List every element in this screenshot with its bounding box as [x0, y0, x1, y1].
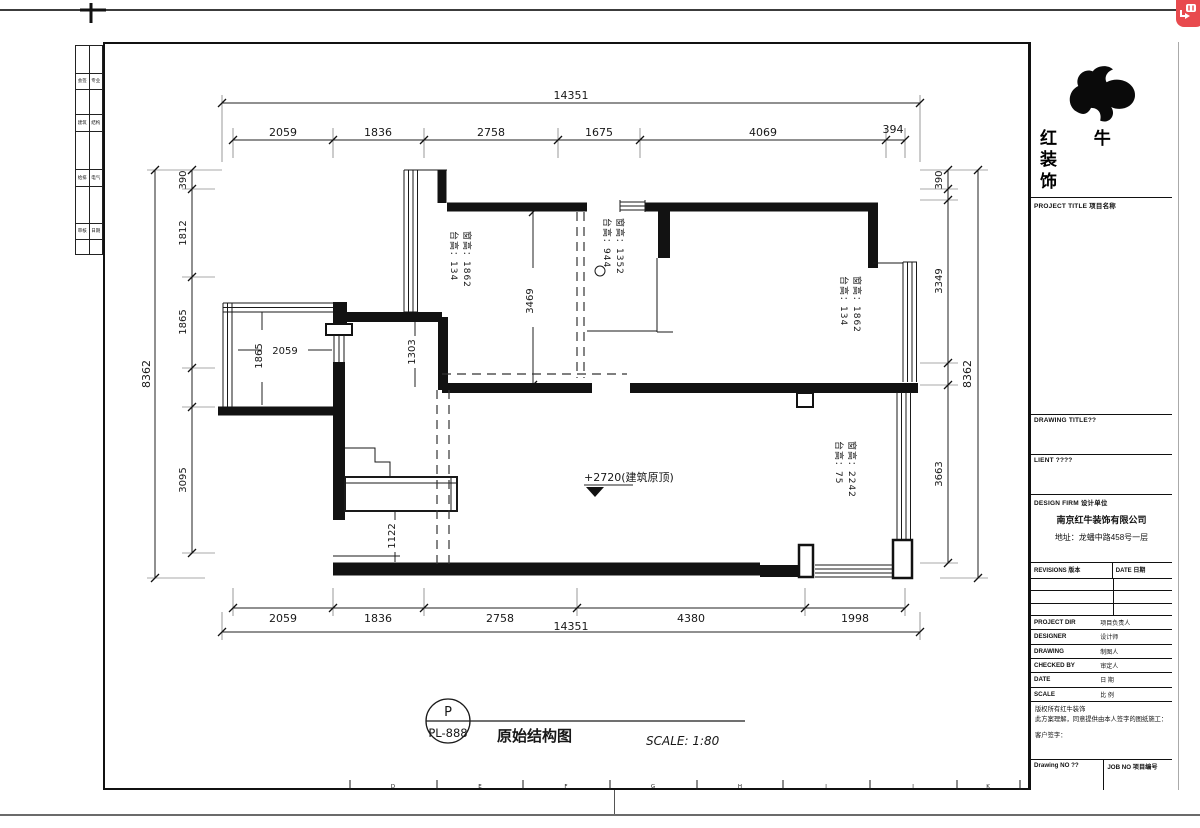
row-label-en: DATE — [1031, 676, 1100, 683]
dim-wall-offset: 1303 — [407, 339, 418, 364]
revisions-date-header: DATE 日期 — [1113, 563, 1149, 578]
drawing-title-bar: P PL-888 原始结构图 SCALE: 1:80 — [426, 699, 745, 748]
dim-bot-1: 2059 — [269, 612, 297, 625]
axis-letter: D — [391, 784, 395, 790]
dim-top-3: 2758 — [477, 126, 505, 139]
window-note-1a: 台高：134 — [448, 231, 460, 281]
rednow-bull-icon — [1056, 64, 1148, 128]
dim-bot-2: 1836 — [364, 612, 392, 625]
row-label-cn: 制图人 — [1100, 647, 1118, 656]
info-rows: PROJECT DIR项目负责人 DESIGNER设计师 DRAWING制图人 … — [1031, 616, 1172, 702]
dim-top-5: 4069 — [749, 126, 777, 139]
dim-left-4: 3095 — [178, 467, 189, 492]
row-scale: SCALE比 例 — [1031, 688, 1172, 702]
axis-letter: H — [738, 784, 742, 790]
axis-letter: J — [911, 784, 914, 790]
dim-left-1: 390 — [178, 170, 189, 189]
row-label-en: PROJECT DIR — [1031, 619, 1100, 626]
floor-plan: 14351 2059 1836 2758 1675 4069 394 2059 … — [0, 0, 1200, 828]
level-note: +2720(建筑原顶) — [584, 470, 674, 484]
row-label-en: CHECKED BY — [1031, 662, 1100, 669]
titleblock-logo: 红 牛 装 饰 — [1031, 42, 1172, 198]
level-marker-icon — [586, 487, 604, 497]
row-label-cn: 比 例 — [1100, 690, 1114, 699]
dim-bot-5: 1998 — [841, 612, 869, 625]
row-label-cn: 设计师 — [1100, 632, 1118, 641]
dim-top-total: 14351 — [554, 89, 589, 102]
row-label-en: DESIGNER — [1031, 633, 1100, 640]
axis-ticks — [350, 780, 1020, 790]
dim-top-4: 1675 — [585, 126, 613, 139]
window-note-2b: 窗高：1352 — [614, 218, 626, 275]
dim-left-total: 8362 — [140, 360, 153, 388]
scale-text: SCALE: 1:80 — [646, 734, 720, 748]
dimension-ticks — [151, 99, 982, 636]
company-address: 地址：龙蟠中路458号一层 — [1031, 532, 1172, 543]
row-designer: DESIGNER设计师 — [1031, 630, 1172, 644]
dim-bot-total: 14351 — [554, 620, 589, 633]
walls — [218, 170, 918, 578]
row-project-dir: PROJECT DIR项目负责人 — [1031, 616, 1172, 630]
window-note-2a: 台高：944 — [601, 218, 613, 268]
section-client: LIENT ???? — [1031, 455, 1172, 466]
axis-letter: F — [564, 784, 567, 790]
row-label-en: SCALE — [1031, 691, 1100, 698]
dim-top-6: 394 — [883, 123, 904, 136]
axis-letter: K — [986, 784, 990, 790]
dim-bot-4: 4380 — [677, 612, 705, 625]
drawing-no-label: Drawing NO ?? — [1031, 760, 1104, 790]
dim-top-2: 1836 — [364, 126, 392, 139]
row-label-cn: 日 期 — [1100, 675, 1114, 684]
copyright-line1: 版权所有红牛装饰 — [1035, 705, 1168, 715]
dim-room-height: 3469 — [525, 288, 536, 313]
brand-line1: 红 牛 装 — [1040, 128, 1172, 171]
row-drawing: DRAWING制图人 — [1031, 645, 1172, 659]
section-project-title: PROJECT TITLE 项目名称 — [1031, 198, 1172, 212]
job-no-label: JOB NO 项目编号 — [1104, 760, 1160, 790]
dim-bay-height: 1865 — [254, 343, 265, 368]
window-note-4b: 窗高：2242 — [846, 441, 858, 498]
client-signature-label: 客户签字： — [1035, 731, 1168, 741]
dim-top-1: 2059 — [269, 126, 297, 139]
dim-left-2: 1812 — [178, 220, 189, 245]
revisions-table: REVISIONS 版本 DATE 日期 — [1031, 563, 1172, 616]
dim-right-2: 3349 — [934, 268, 945, 293]
row-label-en: DRAWING — [1031, 648, 1100, 655]
axis-letter: G — [651, 784, 655, 790]
axis-letter: E — [478, 784, 482, 790]
company-name: 南京红牛装饰有限公司 — [1031, 513, 1172, 526]
trim-mark — [80, 3, 106, 23]
copyright-line2: 此方案理解，同意提供由本人签字的图纸施工： — [1035, 715, 1168, 725]
row-label-cn: 项目负责人 — [1100, 618, 1130, 627]
revisions-header: REVISIONS 版本 — [1031, 563, 1113, 578]
drawing-title-text: 原始结构图 — [497, 727, 572, 745]
window-note-1b: 窗高：1862 — [461, 231, 473, 288]
copyright-note: 版权所有红牛装饰 此方案理解，同意提供由本人签字的图纸施工： 客户签字： — [1031, 702, 1172, 760]
row-date: DATE日 期 — [1031, 673, 1172, 687]
titleblock-footer: Drawing NO ?? JOB NO 项目编号 — [1031, 760, 1172, 790]
window-note-3b: 窗高：1862 — [851, 276, 863, 333]
section-design-firm: DESIGN FIRM 设计单位 — [1031, 495, 1172, 509]
dim-left-3: 1865 — [178, 309, 189, 334]
dim-right-total: 8362 — [961, 360, 974, 388]
dim-bot-3: 2758 — [486, 612, 514, 625]
section-drawing-title: DRAWING TITLE?? — [1031, 415, 1172, 426]
dim-bay-width: 2059 — [272, 346, 297, 357]
dim-right-3: 3663 — [934, 461, 945, 486]
row-checked-by: CHECKED BY审定人 — [1031, 659, 1172, 673]
dim-right-1: 390 — [934, 170, 945, 189]
row-label-cn: 审定人 — [1100, 661, 1118, 670]
brand-name: 红 牛 装 饰 — [1031, 128, 1172, 192]
cad-sheet: 会签 专业 建筑 结构 给排 电气 审核 日期 14351 2059 — [0, 0, 1200, 828]
title-bubble-top: P — [444, 705, 452, 720]
axis-letter: I — [825, 784, 827, 790]
extension-lines — [147, 95, 988, 640]
dimension-lines — [155, 103, 978, 632]
window-note-3a: 台高：134 — [838, 276, 850, 326]
title-bubble-code: PL-888 — [428, 726, 467, 740]
dim-shaft-offset: 1122 — [387, 523, 398, 548]
titleblock: 红 牛 装 饰 PROJECT TITLE 项目名称 DRAWING TITLE… — [1028, 42, 1172, 790]
brand-line2: 饰 — [1040, 171, 1172, 192]
window-note-4a: 台高：75 — [833, 441, 845, 484]
